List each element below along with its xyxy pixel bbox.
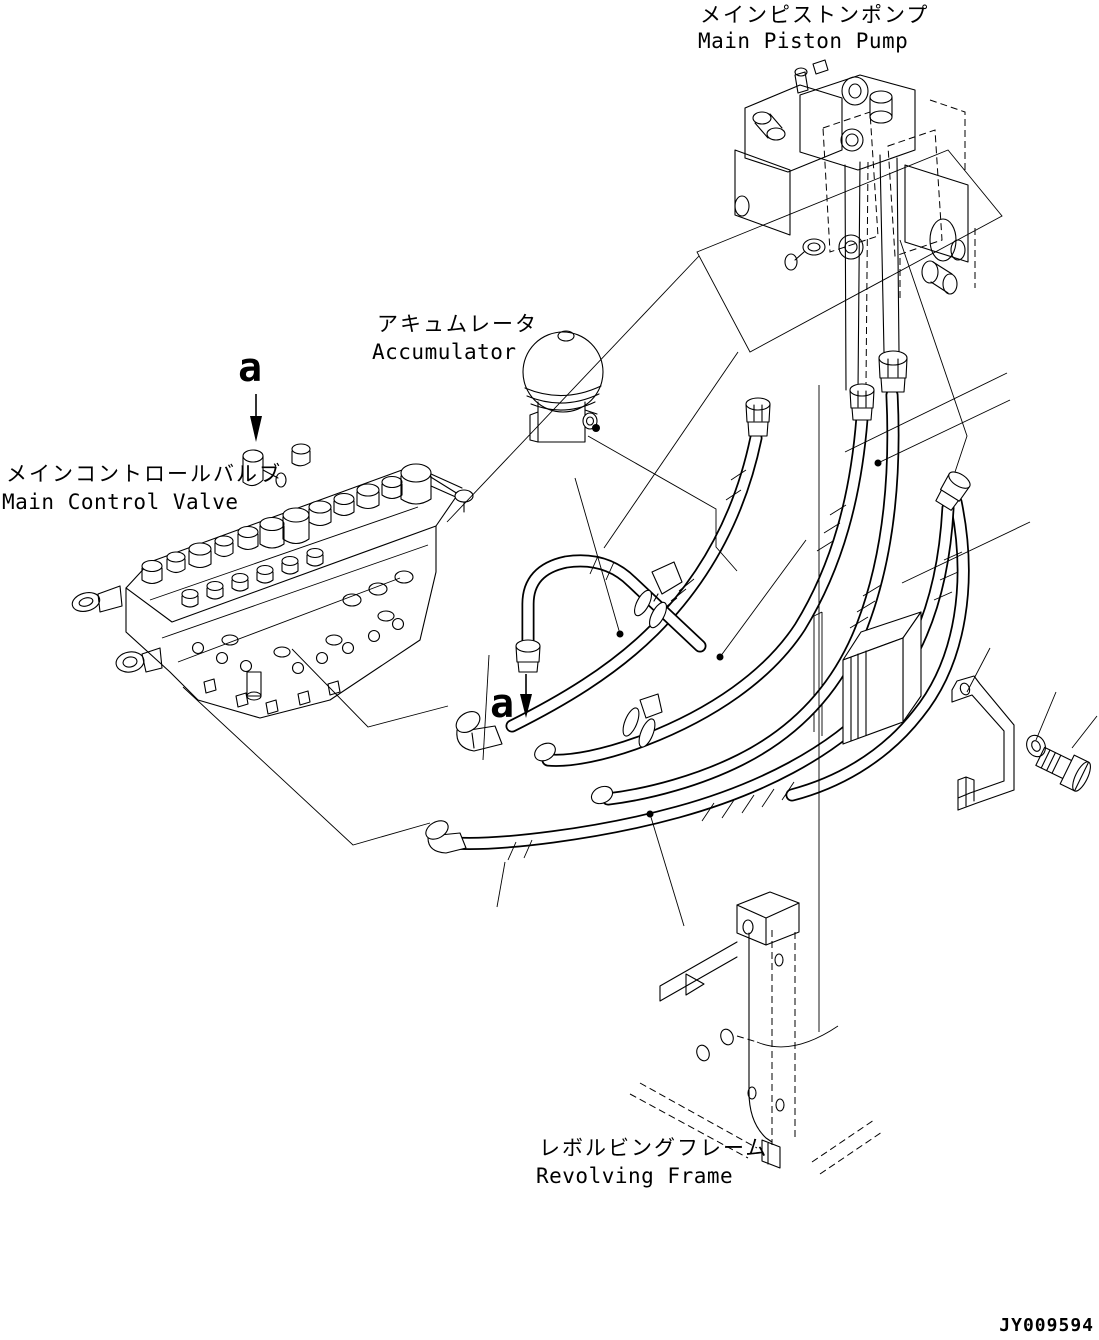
valve-second-row-caps (182, 549, 323, 608)
washer-ring (1023, 732, 1049, 760)
main-piston-pump-label-en: Main Piston Pump (698, 30, 908, 53)
hose-fitting-4 (933, 469, 972, 512)
revolving-frame-label-en: Revolving Frame (536, 1165, 733, 1188)
frame-plate-edge (814, 612, 822, 736)
revolving-frame-label-jp: レボルビングフレーム (539, 1137, 768, 1160)
hose-elbow-bottom (423, 817, 466, 853)
revolving-frame-drawing (630, 892, 882, 1174)
section-marker-a-lower: a (490, 682, 514, 726)
section-marker-a-upper: a (238, 346, 262, 390)
hose-fitting-1 (746, 398, 770, 436)
accumulator-drawing (523, 331, 603, 442)
section-marker-arrow-upper (250, 394, 262, 442)
valve-lower-fittings (193, 571, 414, 714)
hose-assembly (423, 351, 973, 860)
parts-diagram-page: メインピストンポンプ Main Piston Pump アキュムレータ Accu… (0, 0, 1099, 1340)
hose-fitting-3 (879, 351, 907, 392)
pipe-hex-nut (516, 640, 540, 672)
accumulator-label-en: Accumulator (372, 341, 517, 364)
hose-fitting-2 (850, 384, 874, 420)
drawing-number: JY009594 (986, 1316, 1094, 1336)
main-control-valve-label-jp: メインコントロールバルブ (6, 463, 282, 486)
main-piston-pump-label-jp: メインピストンポンプ (700, 4, 929, 27)
main-control-valve-label-en: Main Control Valve (2, 491, 239, 514)
mounting-bolt (1033, 742, 1094, 794)
clamp-bracket (952, 676, 1014, 810)
accumulator-label-jp: アキュムレータ (377, 313, 538, 336)
